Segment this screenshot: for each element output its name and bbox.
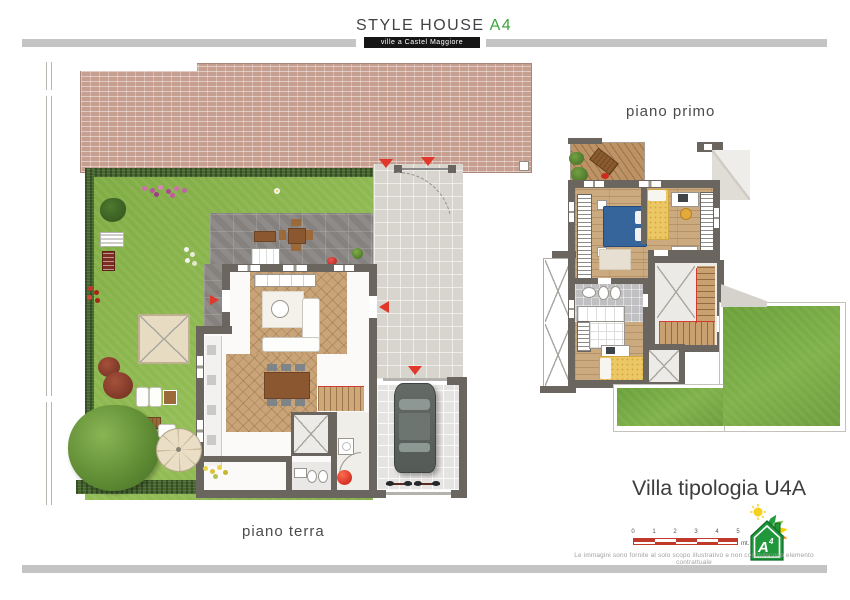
hedge-top [85,168,373,177]
scale-tick: 0 [631,529,634,535]
entrance-arrow-icon [421,157,435,166]
stair-handrail [659,321,715,322]
roof-corner-marker [519,161,529,171]
roof-notch [79,61,197,71]
sofa [262,337,320,352]
dining-table [264,372,310,399]
dining-chair [281,364,291,371]
sun-lounger [100,232,124,247]
elevator-shaft [291,412,331,456]
wall-hall-side [331,412,337,490]
header-rule-right [486,39,827,47]
page-title: Villa tipologia U4A [632,476,806,501]
sun-icon [750,504,766,520]
toilet [307,470,317,483]
entrance-door-gap [369,296,377,318]
patio-chair [306,230,313,240]
appliance [207,345,216,355]
window [334,265,354,271]
roof-hatch [80,63,532,173]
desk-chair [680,208,692,220]
car-windshield [399,399,430,410]
pillow [648,190,666,201]
dining-chair [267,399,277,406]
bath-sink [294,468,307,478]
entrance-arrow-icon [379,301,389,313]
scale-tick: 1 [652,529,655,535]
window [197,356,203,378]
roof-garden [617,388,723,426]
boundary-line [46,62,47,505]
car-roof [399,413,430,440]
window [714,208,719,228]
yellow-flowers [203,466,208,471]
entrance-arrow-icon [379,159,393,168]
chimney-slot [704,144,712,150]
brand-name: STYLE HOUSE [356,17,485,34]
daisy [274,188,280,194]
energy-sup: 4 [768,537,774,546]
scale-tick: 5 [736,529,739,535]
void-room [643,344,685,388]
entrance-arrow-icon [210,295,219,305]
red-cushion [601,173,609,179]
gate-swing-arc [396,172,450,226]
window [569,300,574,318]
washer-door [342,442,351,451]
bath-sink [582,287,596,298]
window [639,181,661,187]
garage-door-rear [386,492,451,495]
rug [599,249,631,270]
scale-tick: 3 [694,529,697,535]
garden-chair [136,387,149,407]
scale-bar: 0 1 2 3 4 5 mt. [633,529,753,549]
red-bush [103,372,133,399]
window [238,265,260,271]
stairwell-void [657,266,695,318]
garage-door [383,378,447,381]
kitchen-units [205,336,222,466]
patio-chair [291,219,301,226]
scale-row [634,542,737,545]
white-flowers [184,247,189,252]
appliance [207,375,216,385]
boundary-line [51,62,52,505]
patio-table [288,228,306,244]
scale-tick: 4 [715,529,718,535]
car-rear-window [399,443,430,452]
header-rule-left [22,39,356,47]
large-tree [68,405,160,491]
pillow [600,358,611,379]
boundary-break [44,396,54,402]
red-basket [337,470,352,485]
roof-wedge [721,281,767,307]
patio-chair [279,230,286,240]
dining-chair [267,364,277,371]
window [584,181,604,187]
scale-tick: 2 [673,529,676,535]
toilet [598,286,609,300]
garden-chair [149,387,162,407]
bidet [610,286,621,300]
wall-left-lower [196,326,204,498]
coffee-table [271,300,289,318]
bidet [318,470,328,483]
stairwell-wall-top [648,256,720,263]
scale-ruler [633,538,738,545]
window [283,265,307,271]
entrance-arrow-icon [408,366,422,375]
patio-chair [291,244,301,251]
dining-chair [295,364,305,371]
boundary-break [44,90,54,96]
wardrobe [577,194,592,280]
first-floor-label: piano primo [626,103,715,120]
appliance [207,405,216,415]
umbrella-pole [176,447,181,452]
gate-leaf [402,168,448,170]
brand-title: STYLE HOUSE A4 [356,17,492,35]
wall-stub [540,386,576,393]
garage-wall-right [459,377,467,498]
laptop [678,194,688,202]
garden-table [163,390,177,405]
dining-chair [295,399,305,406]
wall-hall-garage [369,377,377,498]
stairs-ground [318,386,364,411]
disclaimer-text: Le immagini sono fornite al solo scopo i… [560,552,828,566]
kitchen-counter [254,274,316,287]
roof-garden [723,306,840,426]
patio-cabinet [251,248,280,265]
brochure-page: STYLE HOUSE A4 ville a Castel Maggiore [0,0,850,600]
gazebo [138,314,190,364]
stair-handrail [696,268,697,323]
barbecue [102,251,115,271]
car [394,383,436,473]
terrace-wall [568,138,602,144]
wall-right [369,264,377,377]
ground-floor-label: piano terra [242,523,325,540]
window [569,202,574,222]
brand-suffix: A4 [490,17,513,34]
potted-plant [352,248,363,259]
dining-chair [281,399,291,406]
stairs-upper-run [697,266,715,322]
bicycle [414,477,440,490]
red-flowers [88,286,93,291]
arc [396,172,450,226]
footer-rule [22,565,827,573]
wall-bath-side [286,456,292,498]
stairs-lower-run [659,322,715,345]
laptop [606,347,615,354]
wall-bath-top [196,456,292,462]
bicycle [386,477,412,490]
pink-flowers [142,186,147,191]
door-gap [222,290,230,312]
brand-subtitle-bar: ville a Castel Maggiore [364,37,480,48]
brand-subtitle: ville a Castel Maggiore [381,39,463,46]
patio-bench [254,231,276,242]
stairwell-wall-left [648,256,655,352]
appliance [207,435,216,445]
